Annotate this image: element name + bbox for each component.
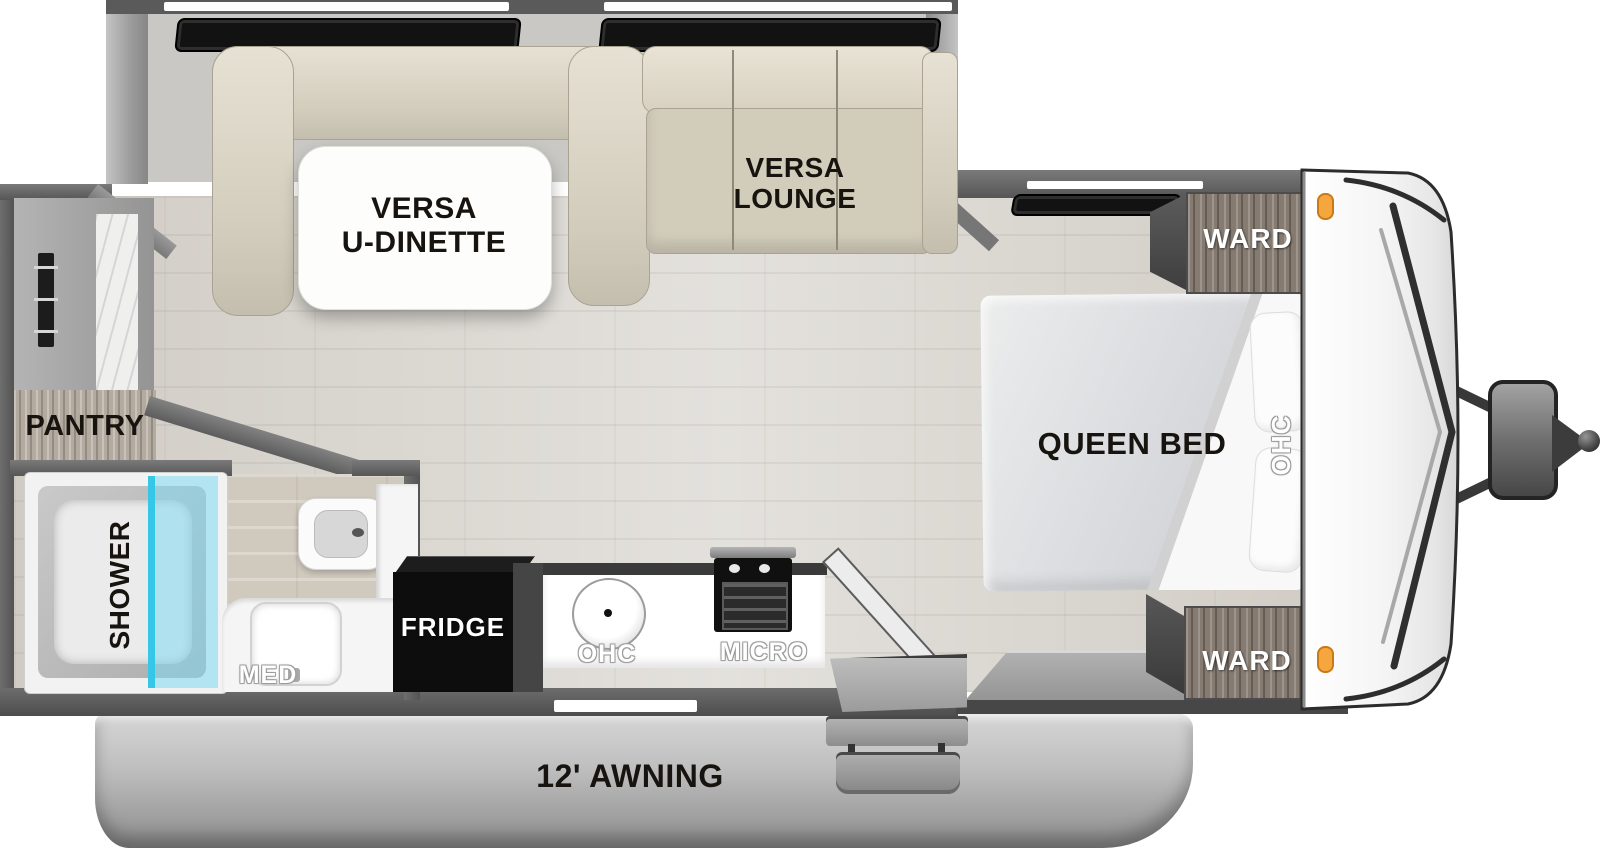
kitchen-ohc-label: OHC [568, 640, 646, 668]
kitchen-ohc-label-text: OHC [578, 640, 637, 669]
med-label-text: MED [239, 661, 298, 690]
entry-step-bottom [836, 752, 960, 794]
kitchen-counter-side [513, 563, 543, 692]
dinette-bench-right [568, 46, 650, 306]
floorplan-canvas: 12' AWNING VERSA U-DINETTE VERSA L [0, 0, 1600, 862]
pantry-label-text: PANTRY [26, 410, 145, 443]
queen-bed-label: QUEEN BED [1032, 426, 1232, 462]
tv-bracket [34, 330, 58, 333]
dinette-label-line1: VERSA [371, 192, 477, 226]
shower-glass-panel [152, 476, 218, 688]
tv-bracket [34, 266, 58, 269]
dinette-label-line2: U-DINETTE [342, 226, 507, 260]
fridge-label: FRIDGE [393, 612, 513, 642]
kitchen-sink-drain [604, 609, 612, 617]
front-cap-and-hitch [1290, 160, 1600, 740]
entry-landing [830, 654, 967, 712]
awning-label-text: 12' AWNING [536, 758, 723, 795]
stove-handle [710, 547, 796, 558]
pantry-label: PANTRY [14, 404, 156, 448]
queen-bed-label-text: QUEEN BED [1038, 426, 1227, 462]
lounge-armrest [922, 52, 958, 254]
hitch-ball [1578, 430, 1600, 452]
lounge-label-line1: VERSA [746, 152, 845, 183]
shower-label: SHOWER [105, 485, 135, 685]
fridge-label-text: FRIDGE [401, 612, 505, 643]
entry-step-middle [826, 716, 968, 746]
lounge-label: VERSA LOUNGE [700, 150, 890, 216]
lounge-backrest [642, 46, 934, 114]
ward-rear-label-text: WARD [1203, 223, 1293, 255]
rear-wall [0, 184, 14, 712]
bedroom-window-exterior-strip [1027, 181, 1203, 189]
stove-knob [729, 564, 740, 573]
slideout-left-wall [106, 0, 148, 184]
shower-label-text: SHOWER [104, 521, 136, 650]
awning-label: 12' AWNING [450, 758, 810, 794]
marker-light-bottom [1318, 647, 1333, 672]
med-label: MED [226, 660, 310, 690]
micro-label-text: MICRO [720, 638, 808, 667]
toilet-flush-button [352, 528, 364, 537]
rear-cabinet-marble-panel [96, 214, 138, 390]
shower-glass-edge [148, 476, 155, 688]
marker-light-top [1318, 194, 1333, 219]
front-cap [1302, 170, 1458, 709]
tv-bracket [34, 298, 58, 301]
oven-window [722, 582, 788, 630]
stove-knob [759, 564, 770, 573]
slideout-window-exterior-strip [164, 2, 509, 11]
bathroom-top-wall-stub [352, 460, 420, 476]
bottom-wall-window-strip [554, 700, 697, 712]
micro-label: MICRO [712, 638, 816, 666]
propane-tank-cover [1490, 382, 1556, 498]
lounge-label-line2: LOUNGE [734, 183, 857, 214]
dinette-label: VERSA U-DINETTE [298, 186, 550, 266]
dinette-bench-left [212, 46, 294, 316]
slideout-window-exterior-strip [604, 2, 952, 11]
ward-front-label-text: WARD [1202, 645, 1292, 677]
